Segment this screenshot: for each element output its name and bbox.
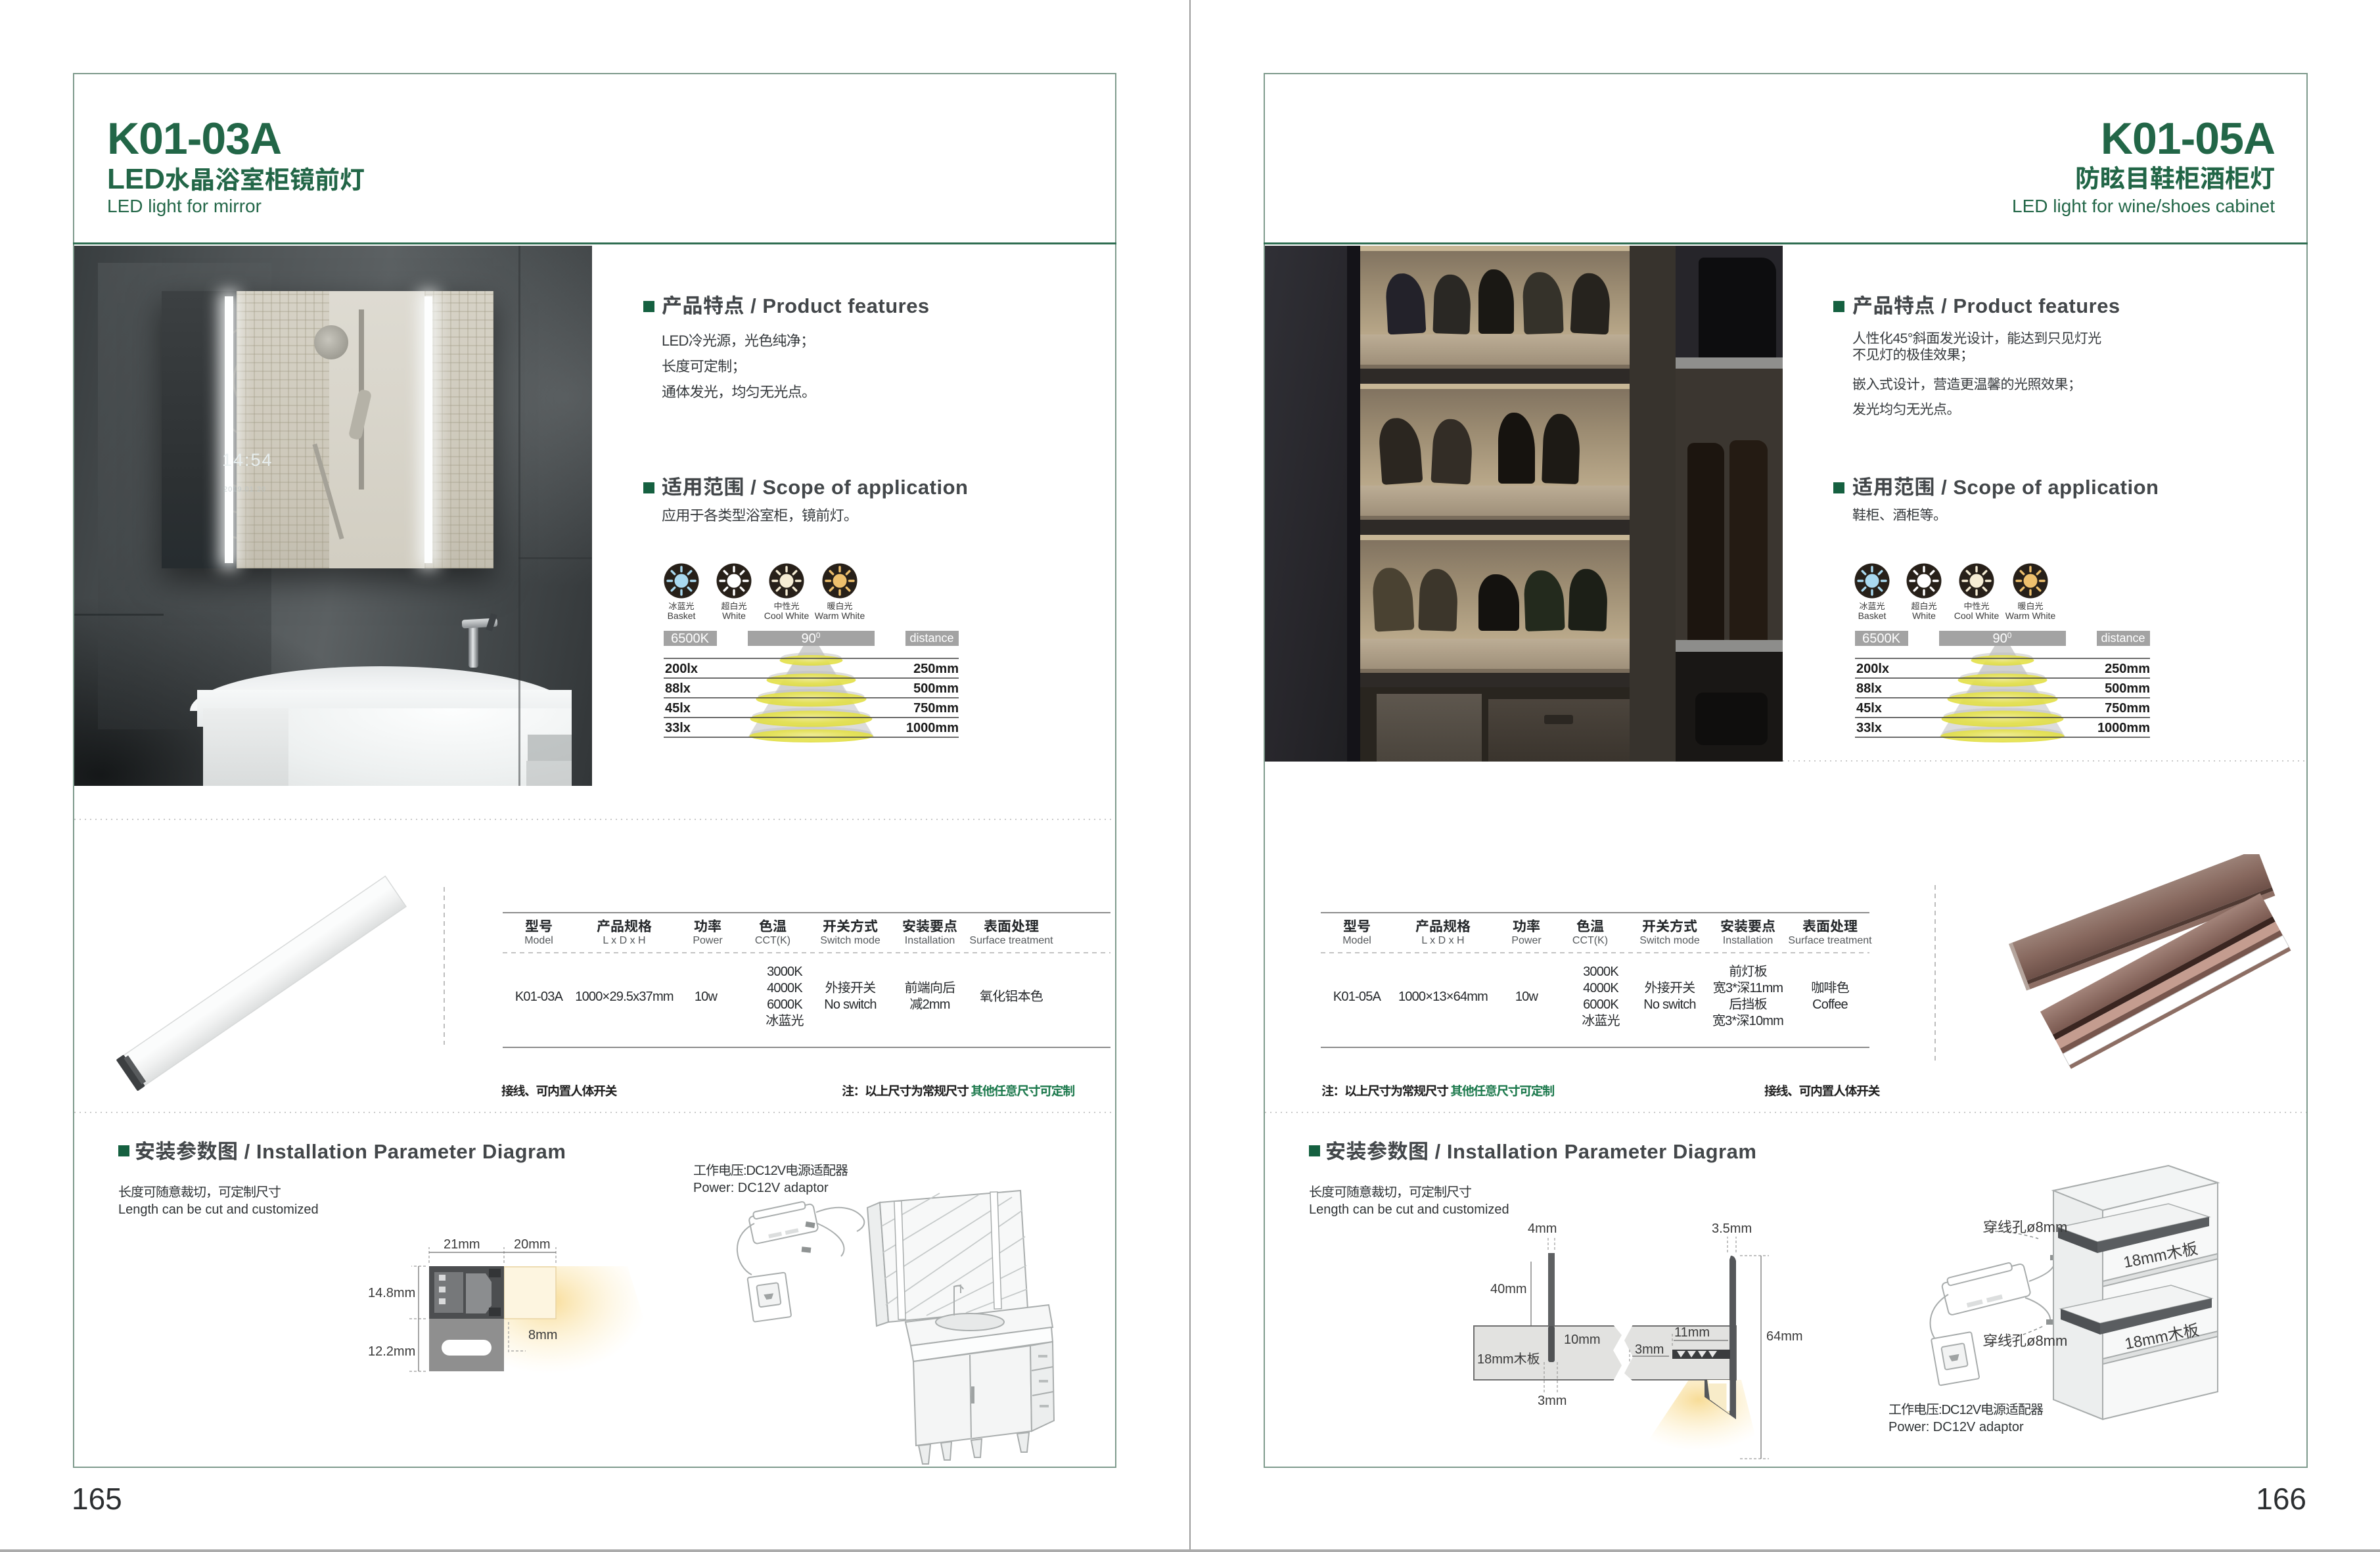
svg-text:750mm: 750mm bbox=[913, 701, 959, 716]
svg-text:45lx: 45lx bbox=[665, 701, 691, 716]
svg-text:33lx: 33lx bbox=[1856, 721, 1882, 735]
svg-text:10mm: 10mm bbox=[1564, 1333, 1601, 1347]
svg-text:500mm: 500mm bbox=[913, 681, 959, 696]
svg-text:45lx: 45lx bbox=[1856, 701, 1882, 716]
svg-text:33lx: 33lx bbox=[665, 721, 691, 735]
svg-text:20mm: 20mm bbox=[514, 1237, 551, 1252]
svg-text:6500K: 6500K bbox=[1862, 631, 1900, 646]
svg-text:6500K: 6500K bbox=[671, 631, 709, 646]
svg-text:750mm: 750mm bbox=[2105, 701, 2150, 716]
svg-text:200lx: 200lx bbox=[665, 662, 698, 676]
svg-text:14.8mm: 14.8mm bbox=[368, 1286, 415, 1300]
svg-text:250mm: 250mm bbox=[913, 662, 959, 676]
svg-text:88lx: 88lx bbox=[1856, 681, 1882, 696]
svg-text:64mm: 64mm bbox=[1766, 1329, 1803, 1344]
svg-text:3mm: 3mm bbox=[1635, 1342, 1664, 1357]
svg-text:200lx: 200lx bbox=[1856, 662, 1889, 676]
svg-text:3.5mm: 3.5mm bbox=[1712, 1222, 1752, 1236]
svg-text:11mm: 11mm bbox=[1674, 1325, 1710, 1340]
svg-text:distance: distance bbox=[2101, 631, 2145, 645]
svg-text:3mm: 3mm bbox=[1538, 1394, 1567, 1408]
svg-text:1000mm: 1000mm bbox=[906, 721, 959, 735]
svg-text:12.2mm: 12.2mm bbox=[368, 1344, 415, 1359]
svg-text:8mm: 8mm bbox=[528, 1328, 557, 1342]
svg-text:250mm: 250mm bbox=[2105, 662, 2150, 676]
svg-text:distance: distance bbox=[909, 631, 953, 645]
svg-text:1000mm: 1000mm bbox=[2097, 721, 2150, 735]
svg-text:500mm: 500mm bbox=[2105, 681, 2150, 696]
svg-text:21mm: 21mm bbox=[444, 1237, 480, 1252]
svg-text:40mm: 40mm bbox=[1490, 1282, 1527, 1296]
svg-text:88lx: 88lx bbox=[665, 681, 691, 696]
svg-text:4mm: 4mm bbox=[1528, 1222, 1557, 1236]
